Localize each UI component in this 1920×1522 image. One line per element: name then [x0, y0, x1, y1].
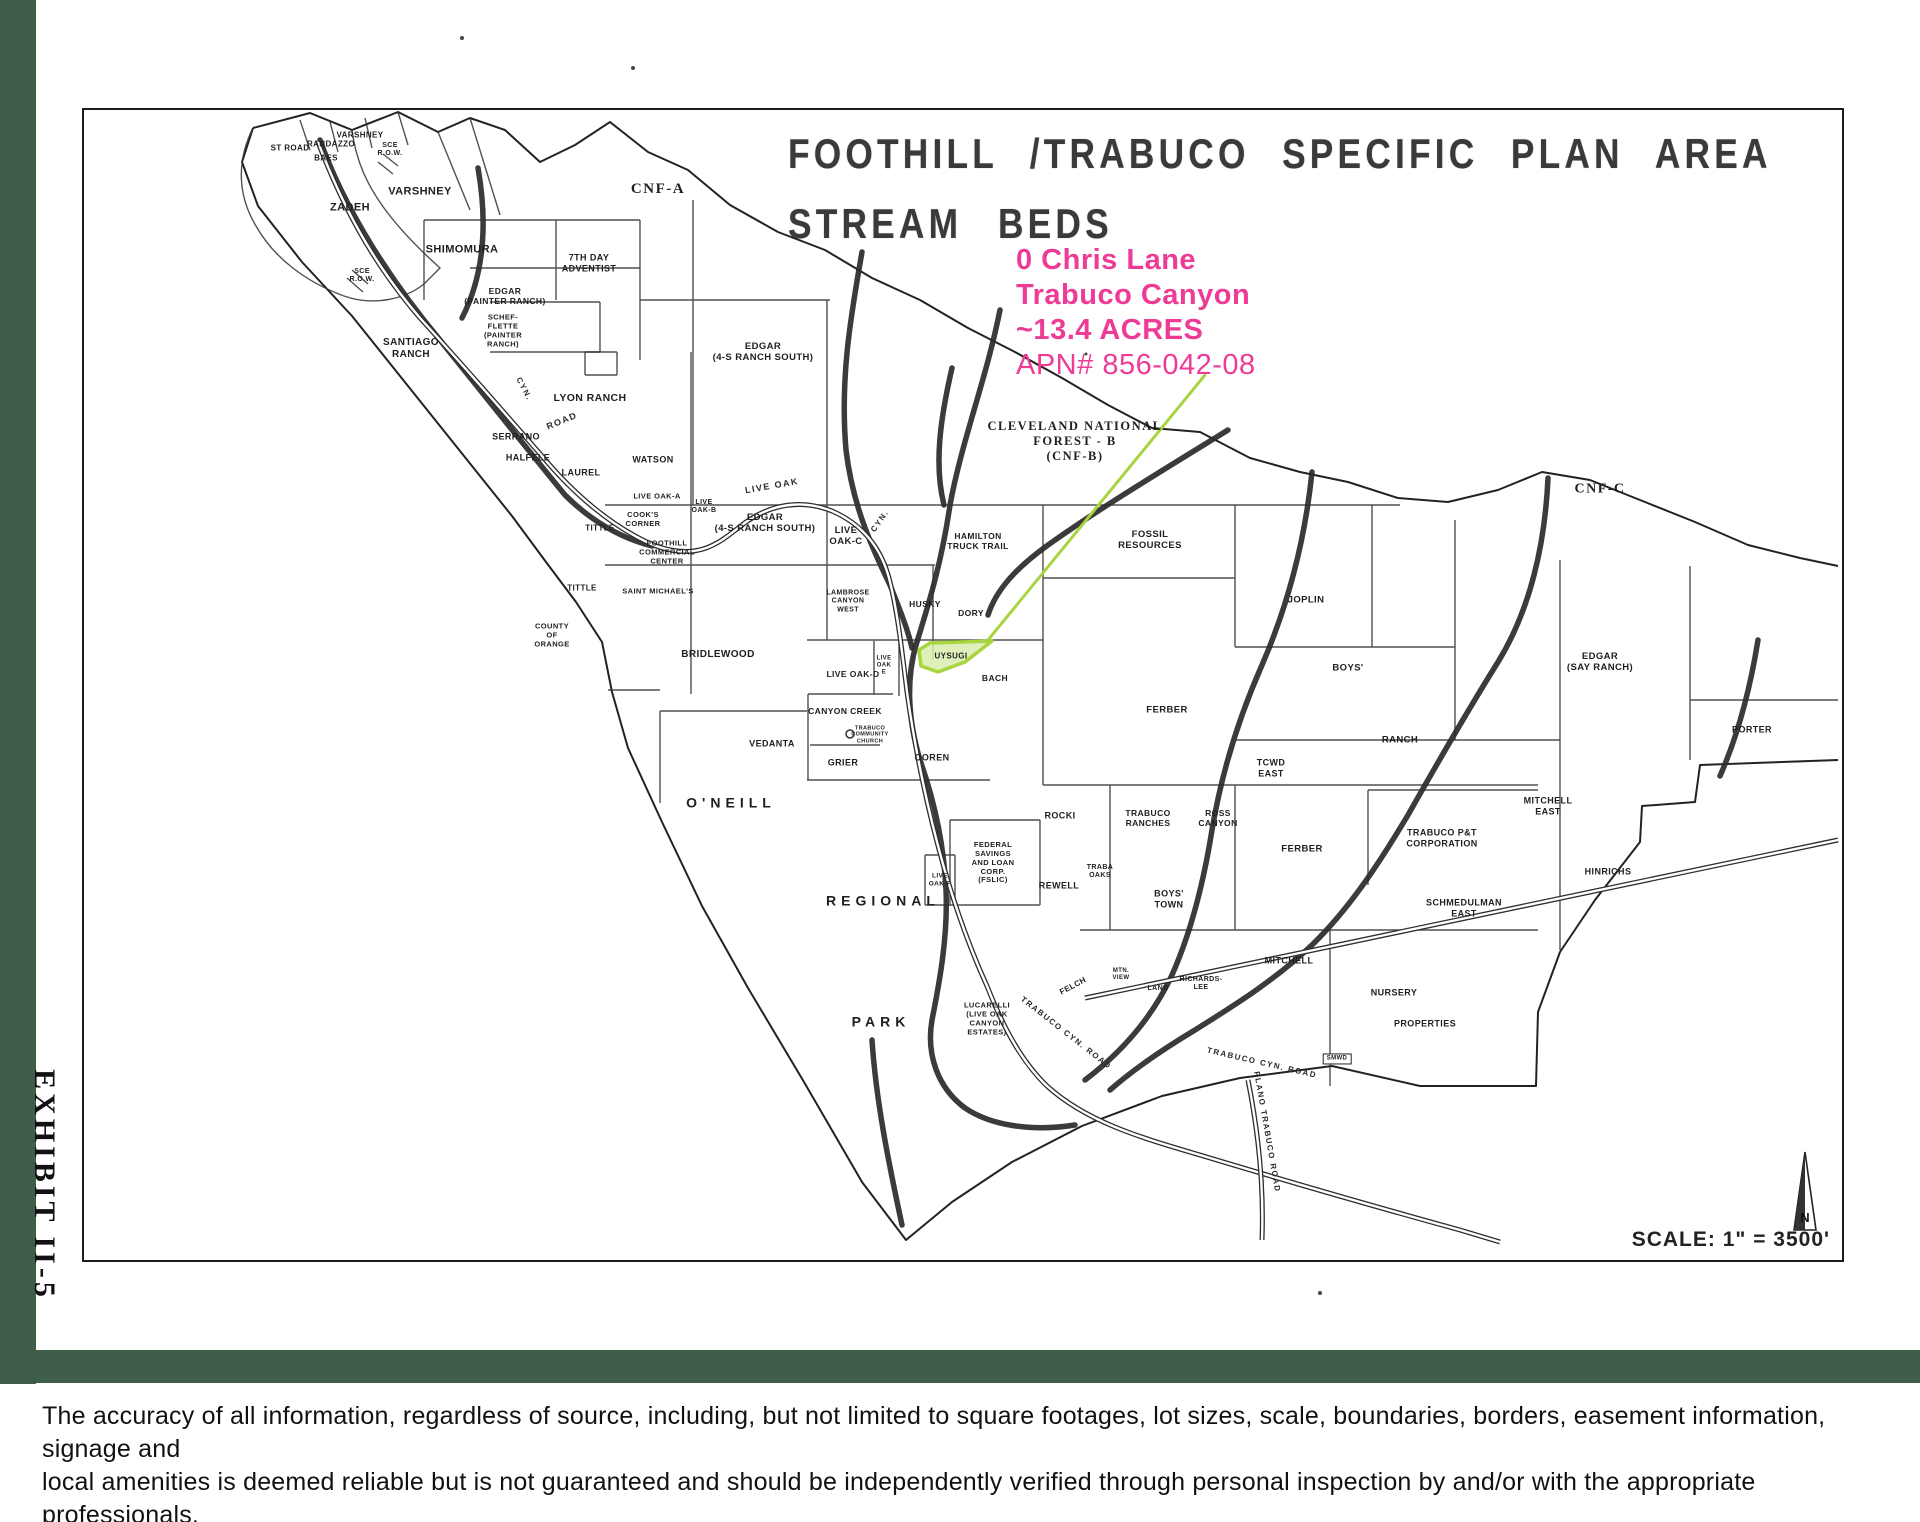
parcel-label: LYON RANCH — [553, 392, 626, 404]
parcel-label: EDGAR (SAY RANCH) — [1567, 651, 1633, 673]
parcel-label: TRABUCO P&T CORPORATION — [1406, 827, 1477, 848]
parcel-label: CLEVELAND NATIONAL FOREST - B (CNF-B) — [987, 419, 1162, 463]
parcel-label: LAND — [1147, 985, 1168, 993]
parcel-label: FERBER — [1281, 843, 1322, 854]
listing-annotation: 0 Chris Lane Trabuco Canyon ~13.4 ACRES … — [1016, 243, 1256, 383]
parcel-label: TCWD EAST — [1257, 757, 1286, 778]
parcel-label: SCE R.O.W. — [350, 268, 375, 285]
parcel-label: PROPERTIES — [1394, 1019, 1456, 1030]
parcel-label: FEDERAL SAVINGS AND LOAN CORP. (FSLIC) — [972, 841, 1015, 885]
parcel-label: LIVE OAK-B — [692, 499, 717, 516]
parcel-label: FOSSIL RESOURCES — [1118, 529, 1182, 551]
parcel-label: BOYS' — [1332, 662, 1363, 673]
parcel-label: MITCHELL — [1265, 956, 1314, 967]
scale-label: SCALE: 1" = 3500' — [1630, 1228, 1830, 1252]
parcel-label: MTN. VIEW — [1113, 968, 1130, 982]
annotation-address: 0 Chris Lane — [1016, 243, 1256, 278]
parcel-label: TRABA OAKS — [1087, 864, 1114, 881]
parcel-label: 7TH DAY ADVENTIST — [562, 252, 617, 273]
parcel-label: ST ROAD — [271, 143, 310, 152]
parcel-label: WATSON — [632, 455, 673, 466]
parcel-label: SMWD — [1323, 1053, 1352, 1064]
parcel-label: UYSUGI — [934, 651, 967, 660]
parcel-label: VARSHNEY — [388, 186, 452, 199]
parcel-label: LIVE OAK-C — [829, 525, 862, 547]
parcel-label: PARK — [852, 1014, 911, 1031]
disclaimer-line: The accuracy of all information, regardl… — [42, 1400, 1888, 1466]
parcel-label: GRIER — [828, 758, 859, 769]
parcel-label: TITTLE — [567, 583, 597, 592]
parcel-label: LIVE OAK-A — [633, 493, 680, 502]
parcel-label: LIVE OAK-F — [929, 872, 952, 887]
parcel-label: EDGAR (4-S RANCH SOUTH) — [713, 341, 814, 363]
parcel-label: HAMILTON TRUCK TRAIL — [947, 531, 1009, 551]
parcel-label: FOOTHILL COMMERCIAL CENTER — [639, 540, 695, 567]
disclaimer: The accuracy of all information, regardl… — [42, 1400, 1888, 1522]
parcel-label: ZADEH — [330, 202, 370, 215]
parcel-label: LIVE OAK-D — [826, 669, 879, 679]
parcel-label: TRABUCO COMMUNITY CHURCH — [851, 725, 889, 744]
parcel-label: LAUREL — [562, 468, 601, 479]
parcel-label: TRABUCO RANCHES — [1125, 808, 1170, 828]
parcel-leader-line — [988, 375, 1205, 640]
annotation-city: Trabuco Canyon — [1016, 278, 1256, 313]
parcel-label: BAES — [314, 153, 338, 162]
parcel-label: ROCKI — [1045, 811, 1076, 822]
parcel-label: CANYON CREEK — [808, 706, 882, 716]
parcel-label: VEDANTA — [749, 739, 795, 750]
parcel-label: CNF-A — [631, 181, 685, 199]
parcel-label: SCHEF- FLETTE (PAINTER RANCH) — [484, 313, 522, 348]
parcel-label: VARSHNEY — [336, 130, 383, 139]
north-arrow-icon: N — [1794, 1152, 1816, 1230]
parcel-label: CNF-C — [1574, 482, 1625, 499]
parcel-label: RICHARDS- LEE — [1180, 976, 1223, 993]
parcel-label: HUSKY — [909, 599, 941, 609]
parcel-label: COUNTY OF ORANGE — [534, 623, 569, 650]
parcel-label: RANCH — [1382, 734, 1418, 745]
parcel-label: SCHMEDULMAN EAST — [1426, 897, 1502, 918]
parcel-label: NURSERY — [1371, 988, 1417, 999]
parcel-label: BRIDLEWOOD — [681, 649, 754, 661]
parcel-label: COOK'S CORNER — [626, 511, 661, 529]
parcel-label: REWELL — [1039, 881, 1079, 892]
parcel-label: ROSS CANYON — [1198, 808, 1237, 828]
parcel-label: SERRANO — [492, 432, 540, 443]
parcel-label: HINRICHS — [1585, 867, 1632, 878]
parcel-label: O'NEILL — [686, 795, 776, 812]
parcel-label: LIVE OAK E — [877, 655, 892, 676]
annotation-apn: APN# 856-042-08 — [1016, 348, 1256, 383]
parcel-label: SHIMOMURA — [426, 244, 499, 257]
parcel-label: MITCHELL EAST — [1524, 795, 1573, 816]
parcel-label: EDGAR (4-S RANCH SOUTH) — [715, 512, 816, 534]
parcel-label: RANDAZZO — [307, 139, 355, 148]
parcel-label: SANTIAGO RANCH — [383, 337, 439, 361]
parcel-label: BACH — [982, 673, 1008, 683]
parcel-label: EDGAR (PAINTER RANCH) — [464, 286, 545, 306]
page-title: FOOTHILL /TRABUCO SPECIFIC PLAN AREA — [788, 130, 1772, 178]
page-subtitle: STREAM BEDS — [788, 200, 1113, 248]
parcel-label: HALFELE — [506, 453, 550, 464]
parcel-label: SCE R.O.W. — [378, 142, 403, 159]
annotation-acreage: ~13.4 ACRES — [1016, 313, 1256, 348]
parcel-label: PORTER — [1732, 725, 1772, 736]
parcel-label: LAMBROSE CANYON WEST — [826, 590, 869, 615]
disclaimer-line: local amenities is deemed reliable but i… — [42, 1466, 1888, 1522]
parcel-label: OOREN — [914, 753, 949, 764]
parcel-label: TITTLE — [585, 523, 615, 532]
parcel-label: REGIONAL — [826, 893, 940, 910]
scanned-map-page: EXHIBIT II-5 — [0, 0, 1920, 1522]
parcel-label: DORY — [958, 608, 984, 618]
parcel-label: FERBER — [1146, 704, 1187, 715]
parcel-label: JOPLIN — [1288, 594, 1325, 605]
parcel-label: BOYS' TOWN — [1154, 888, 1184, 909]
parcel-label: LUCARELLI (LIVE OAK CANYON ESTATES) — [964, 1001, 1010, 1036]
parcel-label: SAINT MICHAEL'S — [622, 588, 694, 597]
north-label: N — [1800, 1210, 1809, 1225]
